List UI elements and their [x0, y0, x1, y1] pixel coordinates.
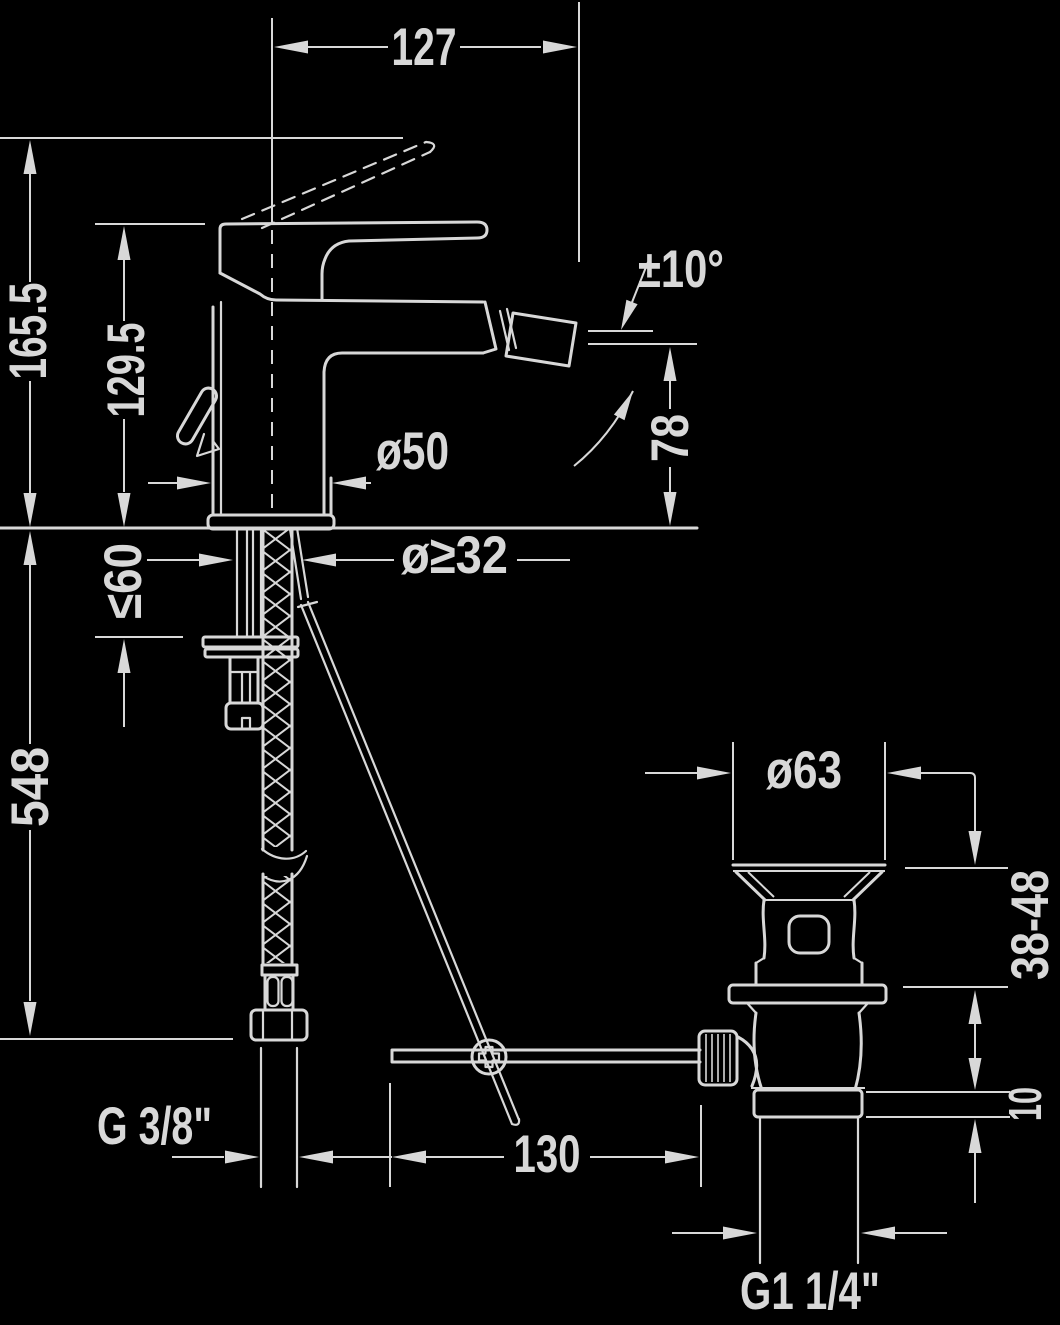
- dimension-548-label: 548: [1, 747, 60, 827]
- hose-braid-upper: [264, 530, 291, 847]
- arrow-left: [392, 1151, 426, 1164]
- arrow-right: [723, 1227, 757, 1240]
- dimension-130-label: 130: [514, 1125, 581, 1184]
- dimension-10: 10: [866, 1058, 1051, 1203]
- dimension-78-label: 78: [641, 414, 700, 462]
- dimension-g38: G 3/8": [97, 1097, 392, 1164]
- hose-braid-lower: [264, 876, 291, 963]
- arrow-up: [969, 1119, 982, 1153]
- dimension-130: 130: [390, 1083, 701, 1187]
- arrow-right: [543, 41, 577, 54]
- arrow-up: [24, 140, 37, 174]
- dimension-10-label: 10: [999, 1087, 1051, 1121]
- aerator-outlet: [506, 313, 576, 366]
- dimension-max-60: ≤60: [94, 543, 183, 727]
- dimension-165-5: 165.5: [0, 138, 403, 527]
- mounting-nut-slot: [242, 718, 250, 729]
- spout-tip-face: [483, 302, 496, 353]
- arrow-right: [225, 1151, 259, 1164]
- side-lever-base: [197, 434, 219, 456]
- arrow-right: [697, 767, 731, 780]
- dimension-127-label: 127: [392, 18, 457, 77]
- popup-rod-linkage: [290, 528, 700, 1125]
- arrow-up: [664, 347, 677, 381]
- handle-outline: [220, 222, 487, 300]
- arrow-down: [24, 493, 37, 527]
- dimension-o63-label: ø63: [766, 741, 842, 800]
- dimension-o50-label: ø50: [376, 422, 449, 481]
- lock-flange: [729, 985, 886, 1003]
- arrow-right: [177, 477, 211, 490]
- bidet-mixer-dimensional-drawing: 127 165.5 129.5 ≤60 548 ø50 ø: [0, 0, 1060, 1325]
- arrow-left: [302, 554, 336, 567]
- waste-body-sides: [756, 963, 862, 985]
- supply-pipes: [237, 529, 261, 637]
- ref-lines: [866, 1092, 1010, 1117]
- arrow-down: [969, 1058, 982, 1090]
- mounting-stud-lines: [230, 672, 258, 703]
- supply-hex-nut-flats: [263, 1010, 292, 1040]
- arrow-up: [118, 226, 131, 260]
- ref-lines: [588, 331, 697, 344]
- popup-rod-upper: [290, 528, 317, 607]
- arrow-right: [665, 1151, 699, 1164]
- drain-assembly: [699, 865, 886, 1263]
- technical-drawing-page: 127 165.5 129.5 ≤60 548 ø50 ø: [0, 0, 1060, 1325]
- body-top-outline: [220, 273, 483, 302]
- dimension-o63: ø63: [645, 741, 975, 860]
- faucet-drawing: [0, 18, 697, 529]
- arrow-down: [118, 493, 131, 527]
- waste-funnel-inner: [748, 872, 870, 900]
- arrow-right: [199, 554, 233, 567]
- waste-funnel-sides: [736, 872, 882, 900]
- supply-hex-nut: [251, 1010, 307, 1040]
- dimension-o32-label: ø≥32: [401, 526, 508, 585]
- dimension-plus-minus-10-label: ±10°: [638, 240, 724, 299]
- bottom-flange: [754, 1090, 862, 1117]
- dimension-g114-label: G1 1/4": [740, 1262, 880, 1321]
- arrow-up: [969, 990, 982, 1024]
- hose-fitting-slot-right: [282, 977, 293, 1006]
- supply-thread-tail: [261, 1048, 297, 1187]
- dimension-38-48-label: 38-48: [1001, 870, 1060, 980]
- arrow-down: [969, 831, 982, 865]
- dimension-o32: ø≥32: [147, 526, 570, 585]
- leader-arrow: [621, 300, 638, 330]
- horizontal-rod: [392, 1050, 700, 1062]
- waste-tailpiece: [760, 1117, 858, 1263]
- hose-collar: [262, 965, 297, 975]
- handle-raised-dashed-top: [242, 142, 426, 219]
- overflow-hole: [789, 916, 829, 953]
- mounting-nut: [226, 703, 263, 729]
- supply-and-mounting: [203, 529, 307, 1187]
- arrow-left: [299, 1151, 333, 1164]
- dimension-o50: ø50: [148, 422, 449, 490]
- waste-ball-section: [754, 1013, 861, 1090]
- arrow-left: [887, 767, 921, 780]
- dimension-78: 78: [641, 347, 700, 526]
- dimension-g38-label: G 3/8": [97, 1097, 212, 1156]
- dimension-max-60-label: ≤60: [94, 543, 153, 619]
- waste-step: [756, 958, 862, 963]
- arrow-left: [332, 477, 366, 490]
- mounting-stud: [230, 657, 258, 703]
- adjuster-knob-knurling: [706, 1034, 730, 1082]
- arrow-left: [861, 1227, 895, 1240]
- waste-neck: [763, 900, 855, 958]
- arrow-down: [24, 1002, 37, 1036]
- dimension-g114: G1 1/4": [672, 1227, 947, 1322]
- hose-fitting-slot-left: [268, 977, 279, 1006]
- dimension-129-5-label: 129.5: [97, 323, 156, 418]
- arrow-up: [118, 639, 131, 673]
- dimension-165-5-label: 165.5: [0, 283, 58, 380]
- handle-raised-dashed-bottom: [262, 152, 430, 228]
- dimension-38-48: 38-48: [903, 778, 1060, 1058]
- arrow-up: [24, 531, 37, 565]
- arrow-down: [664, 492, 677, 526]
- swivel-arc-arrow: [614, 391, 633, 420]
- arrow-left: [274, 41, 308, 54]
- handle-raised-tip-cap: [426, 142, 434, 152]
